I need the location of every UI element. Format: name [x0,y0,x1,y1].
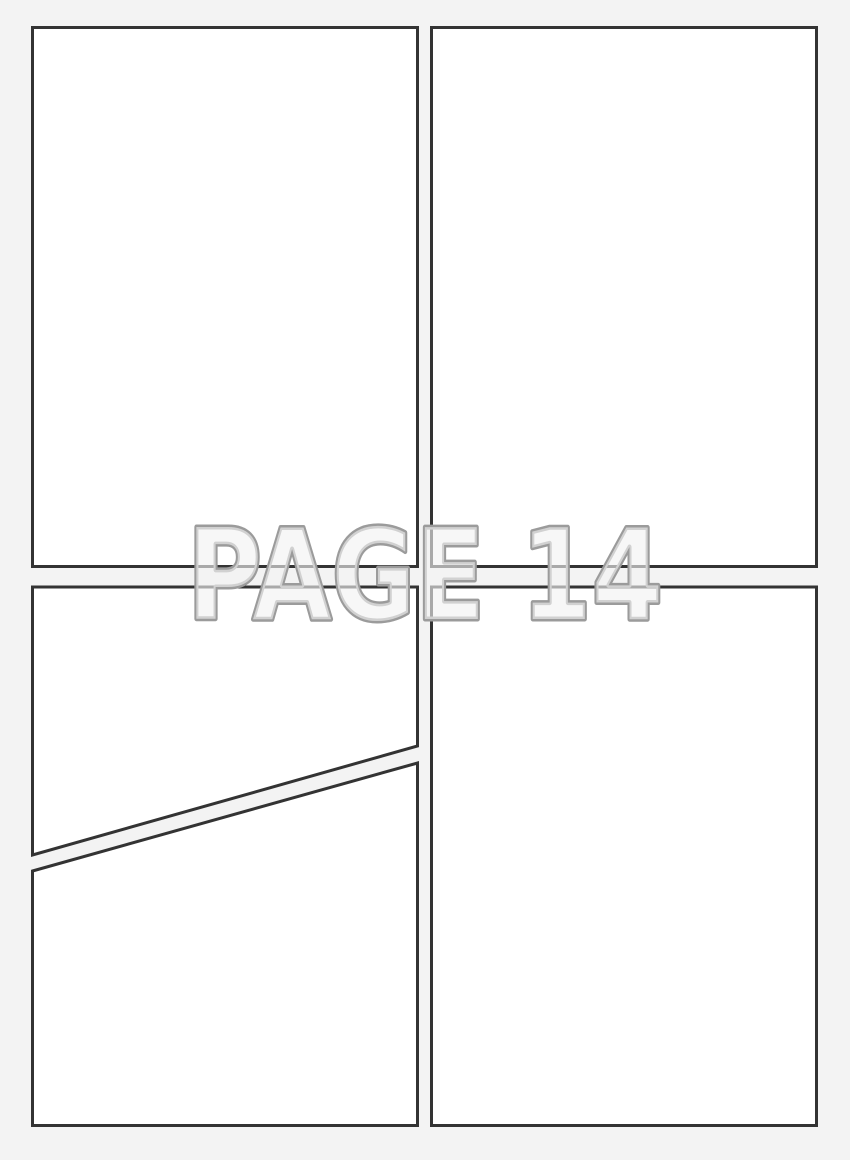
comic-page-template: PAGE 14 [0,0,850,1160]
panel-bottom-right [432,587,817,1126]
panel-top-right [432,28,817,567]
panel-top-left [33,28,418,567]
comic-page-canvas: PAGE 14 [0,0,850,1160]
page-number-label: PAGE 14 [187,502,663,649]
